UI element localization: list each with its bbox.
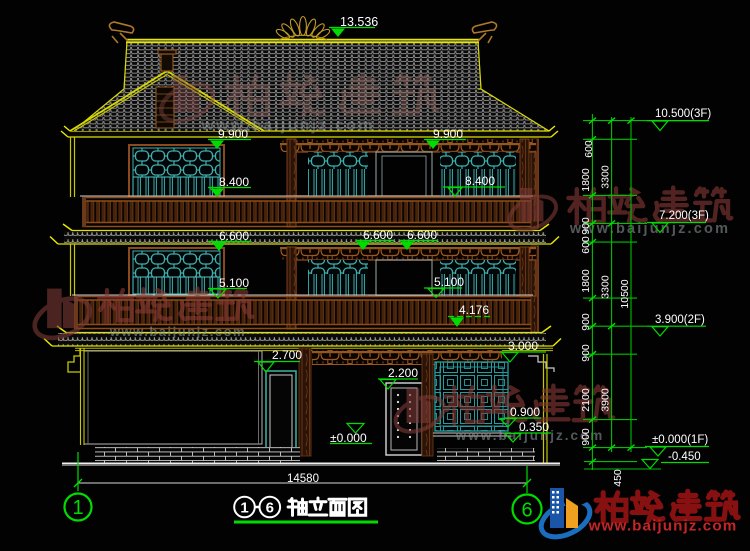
svg-text:900: 900 (580, 217, 592, 235)
svg-text:10500: 10500 (619, 279, 631, 308)
svg-text:450: 450 (612, 469, 624, 487)
svg-text:600: 600 (580, 236, 592, 254)
svg-text:5.100: 5.100 (434, 275, 464, 289)
svg-text:±0.000(1F): ±0.000(1F) (652, 434, 708, 446)
svg-text:600: 600 (583, 140, 595, 158)
svg-text:-0.450: -0.450 (668, 451, 701, 463)
svg-text:3.900(2F): 3.900(2F) (655, 314, 705, 326)
svg-text:www.baijunjz.com: www.baijunjz.com (109, 324, 246, 339)
svg-text:3300: 3300 (600, 275, 612, 299)
svg-text:3.000: 3.000 (508, 339, 538, 353)
svg-text:14580: 14580 (287, 473, 319, 485)
svg-text:0.900: 0.900 (510, 405, 540, 419)
svg-text:2.200: 2.200 (388, 366, 418, 380)
svg-text:900: 900 (580, 428, 592, 446)
svg-text:www.baijunjz.com: www.baijunjz.com (588, 518, 738, 535)
svg-text:2100: 2100 (580, 388, 592, 412)
svg-text:1: 1 (72, 497, 83, 519)
svg-text:1800: 1800 (580, 269, 592, 293)
svg-text:900: 900 (580, 344, 592, 362)
svg-text:4.176: 4.176 (459, 303, 489, 317)
svg-text:3900: 3900 (600, 388, 612, 412)
svg-text:10.500(3F): 10.500(3F) (655, 108, 711, 120)
svg-text:±0.000: ±0.000 (330, 431, 367, 445)
svg-text:1800: 1800 (580, 168, 592, 192)
svg-text:900: 900 (580, 313, 592, 331)
svg-text:0.350: 0.350 (519, 420, 549, 434)
svg-text:6: 6 (521, 500, 532, 522)
svg-text:1: 1 (240, 500, 248, 517)
svg-text:6: 6 (266, 500, 274, 517)
svg-text:2.700: 2.700 (272, 348, 302, 362)
svg-text:7.200(3F): 7.200(3F) (659, 210, 709, 222)
svg-text:8.400: 8.400 (465, 174, 495, 188)
svg-text:3300: 3300 (600, 165, 612, 189)
